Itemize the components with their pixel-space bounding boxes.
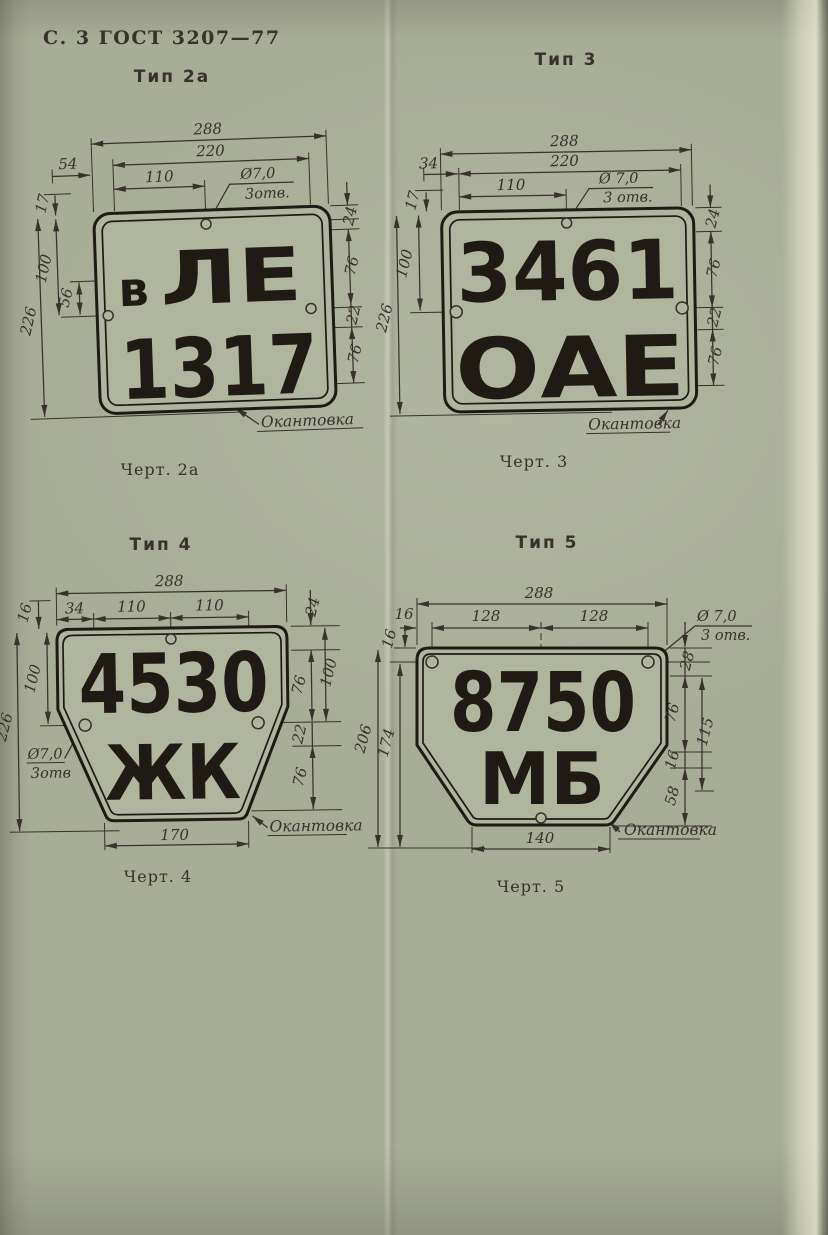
mounting-hole: [201, 219, 211, 229]
figure-caption-2a: Черт. 2а: [121, 460, 200, 479]
hole-note-count: 3отв.: [245, 185, 290, 203]
dim-label-half-width-2: 110: [195, 596, 224, 614]
hole-note-diameter: Ø 7,0: [696, 609, 737, 625]
figure-type-2a: в ЛЕ 1317 288 220 110 54 17 226 100 56 2…: [9, 115, 369, 440]
dim-label-total-width: 288: [154, 572, 184, 590]
dim-label-row2-height: 76: [289, 765, 311, 788]
border-callout: Окантовка: [269, 816, 362, 835]
dim-label-right-upper: 100: [316, 656, 341, 689]
dim-label-row1-height: 76: [661, 701, 683, 725]
dim-label-right-top: 24: [701, 207, 723, 231]
dim-label-total-height: 206: [351, 722, 376, 756]
dim-label-top-margin: 16: [378, 627, 400, 651]
mounting-hole: [536, 813, 546, 823]
dim-label-right-mid: 115: [693, 716, 718, 748]
figure-caption-4: Черт. 4: [124, 867, 192, 886]
dim-label-upper-height: 100: [32, 252, 56, 284]
dim-label-upper-height: 100: [392, 247, 417, 280]
plate-5: 8750 МБ: [417, 648, 667, 825]
dim-label-inner-width: 220: [195, 141, 226, 160]
page-header: С. 3 ГОСТ 3207—77: [43, 27, 281, 49]
dim-label-right-top: 24: [339, 204, 361, 228]
type-label-3: Тип 3: [534, 50, 597, 70]
dim-label-half-width-1: 128: [472, 607, 501, 625]
dim-label-left-offset: 16: [394, 605, 414, 623]
dim-label-row2-height: 58: [661, 784, 683, 807]
dim-label-top-margin: 17: [401, 188, 423, 211]
dim-label-row-gap: 22: [342, 303, 364, 327]
hole-note-count: 3 отв.: [701, 628, 750, 644]
border-callout: Окантовка: [261, 410, 355, 431]
plate-4: 4530 ЖК: [57, 626, 290, 821]
mounting-hole: [642, 656, 654, 668]
hole-note-count: 3отв: [31, 765, 71, 782]
mounting-hole: [79, 719, 91, 731]
dim-label-row2-height: 76: [704, 344, 726, 367]
dim-label-half-width: 110: [497, 176, 526, 195]
dim-label-top-margin: 16: [14, 601, 36, 624]
figure-type-4: 4530 ЖК 288 34 110 110 16 100 226 24 76 …: [0, 569, 363, 851]
dim-label-total-height: 226: [0, 710, 17, 744]
dim-label-left-offset: 34: [419, 154, 438, 172]
drawings-canvas: С. 3 ГОСТ 3207—77 Тип 2а Тип 3 Тип 4 Тип…: [0, 0, 828, 1235]
mounting-hole: [562, 218, 572, 228]
dim-label-total-height: 226: [16, 305, 40, 338]
dim-label-half-width-1: 110: [117, 597, 146, 615]
plate-text-row1: 4530: [78, 636, 269, 734]
border-callout: Окантовка: [624, 821, 717, 839]
figure-type-3: 3461 ОАЕ 288 220 110 34 17 100 226 24 76…: [369, 129, 728, 437]
figure-caption-5: Черт. 5: [497, 877, 565, 896]
plate-text-row1: 3461: [456, 223, 680, 322]
mounting-hole: [252, 717, 264, 729]
plate-text-row2: ЖК: [104, 727, 241, 818]
type-label-4: Тип 4: [129, 535, 192, 555]
hole-note-diameter: Ø7,0: [26, 747, 62, 764]
dim-label-left-offset: 54: [58, 155, 78, 174]
mounting-hole: [166, 634, 176, 644]
dim-label-top-margin: 17: [31, 192, 53, 215]
dim-label-half-width-2: 128: [580, 607, 609, 625]
dim-label-bottom-width: 140: [526, 829, 555, 847]
dim-label-hole-height: 56: [55, 286, 77, 309]
type-label-5: Тип 5: [515, 533, 578, 553]
hole-note-count: 3 отв.: [603, 189, 653, 206]
plate-text-row1: ЛЕ: [158, 232, 303, 323]
mounting-hole: [426, 656, 438, 668]
scanned-standard-page: С. 3 ГОСТ 3207—77 Тип 2а Тип 3 Тип 4 Тип…: [0, 0, 828, 1235]
mounting-hole: [306, 303, 316, 313]
dim-label-row2-height: 76: [344, 342, 366, 365]
dim-label-row1-height: 76: [341, 254, 363, 277]
dim-label-right-top: 28: [676, 649, 699, 673]
dim-label-row1-height: 76: [288, 673, 310, 696]
type-label-2a: Тип 2а: [134, 67, 210, 87]
plate-text-prefix: в: [117, 261, 149, 318]
plate-text-row2: 1317: [118, 317, 319, 419]
hole-note-diameter: Ø7,0: [239, 166, 275, 183]
dim-label-total-width: 288: [524, 584, 554, 602]
mounting-hole: [450, 306, 462, 318]
dim-label-row1-height: 76: [703, 256, 725, 279]
dim-label-upper-height: 100: [20, 662, 45, 695]
plate-text-row2: МБ: [479, 737, 605, 821]
dim-label-total-height: 226: [372, 301, 397, 335]
dim-label-row-gap: 22: [703, 306, 725, 330]
dim-label-inner-width: 220: [549, 152, 579, 171]
dim-label-right-top: 24: [301, 595, 323, 619]
mounting-hole: [676, 302, 688, 314]
dim-label-bottom-width: 170: [160, 826, 189, 844]
plate-3: 3461 ОАЕ: [441, 208, 697, 419]
figure-type-5: 8750 МБ 288 128 128 16 16 206 174 28 76 …: [351, 584, 752, 853]
dim-label-row-gap: 22: [288, 722, 310, 746]
dim-label-total-width: 288: [192, 119, 222, 138]
figure-caption-3: Черт. 3: [500, 452, 568, 471]
plate-2a: в ЛЕ 1317: [94, 206, 337, 420]
dim-label-half-width: 110: [145, 167, 175, 186]
dim-label-left-offset: 34: [65, 599, 84, 617]
border-callout: Окантовка: [588, 414, 681, 434]
mounting-hole: [103, 310, 113, 320]
hole-note-diameter: Ø 7,0: [598, 171, 639, 188]
plate-text-row2: ОАЕ: [454, 317, 686, 419]
dim-label-total-width: 288: [549, 132, 579, 151]
